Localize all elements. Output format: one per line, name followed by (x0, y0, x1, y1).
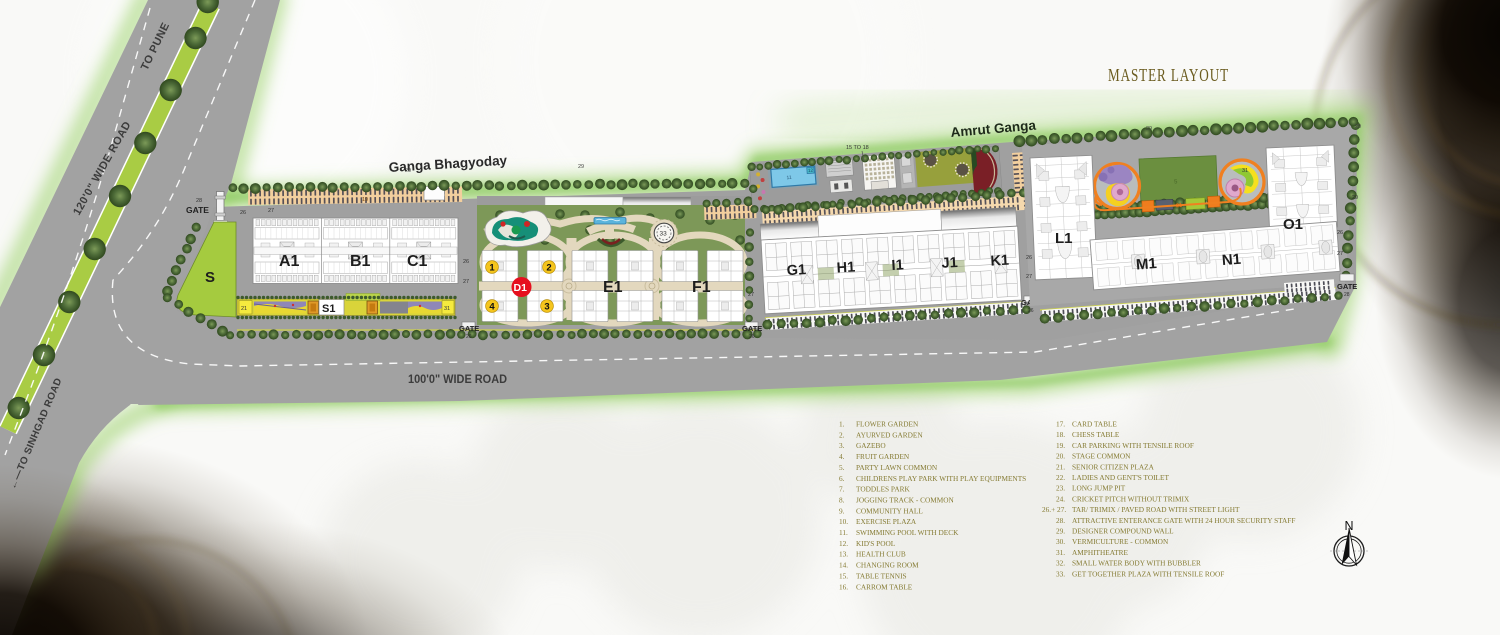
svg-text:33.: 33. (1056, 569, 1065, 578)
svg-text:29: 29 (578, 164, 584, 170)
svg-text:6.: 6. (839, 474, 845, 483)
svg-text:29: 29 (1352, 195, 1358, 201)
svg-text:3: 3 (544, 301, 549, 312)
svg-text:12: 12 (808, 168, 814, 173)
svg-text:J1: J1 (941, 255, 958, 272)
svg-text:TABLE TENNIS: TABLE TENNIS (856, 571, 907, 580)
svg-text:22.: 22. (1056, 473, 1065, 482)
svg-text:B1: B1 (350, 253, 371, 270)
svg-text:CHILDRENS PLAY PARK WITH PLAY: CHILDRENS PLAY PARK WITH PLAY EQUIPMENTS (856, 474, 1026, 483)
svg-text:TAR/ TRIMIX / PAVED ROAD WITH: TAR/ TRIMIX / PAVED ROAD WITH STREET LIG… (1072, 505, 1240, 514)
svg-text:15.: 15. (839, 571, 848, 580)
svg-text:29: 29 (1355, 124, 1361, 130)
svg-text:CARD TABLE: CARD TABLE (1072, 420, 1117, 429)
svg-text:FRUIT GARDEN: FRUIT GARDEN (856, 452, 910, 461)
svg-text:28: 28 (1344, 292, 1350, 298)
svg-text:19.: 19. (1056, 441, 1065, 450)
svg-text:SMALL WATER BODY WITH BUBBLER: SMALL WATER BODY WITH BUBBLER (1072, 559, 1201, 568)
svg-text:29.: 29. (1056, 527, 1065, 536)
svg-text:GATE: GATE (742, 324, 762, 333)
svg-text:HEALTH CLUB: HEALTH CLUB (856, 550, 906, 559)
svg-text:1.: 1. (839, 420, 845, 429)
svg-text:27: 27 (463, 279, 469, 285)
svg-text:PARTY LAWN COMMON: PARTY LAWN COMMON (856, 463, 938, 472)
svg-text:CAR PARKING WITH TENSILE ROOF: CAR PARKING WITH TENSILE ROOF (1072, 441, 1194, 450)
svg-text:33: 33 (660, 231, 668, 238)
svg-text:S: S (205, 269, 215, 286)
svg-text:CHESS TABLE: CHESS TABLE (1072, 430, 1120, 439)
svg-text:26: 26 (463, 259, 469, 265)
svg-text:N: N (1345, 519, 1354, 533)
svg-text:I1: I1 (891, 257, 904, 274)
svg-text:19: 19 (362, 197, 368, 203)
svg-text:C1: C1 (407, 253, 428, 270)
svg-text:CARROM TABLE: CARROM TABLE (856, 582, 913, 591)
svg-text:A1: A1 (279, 253, 300, 270)
svg-text:26: 26 (466, 334, 472, 340)
svg-text:26: 26 (1337, 230, 1343, 236)
svg-text:KID'S POOL: KID'S POOL (856, 539, 896, 548)
svg-text:JOGGING TRACK - COMMON: JOGGING TRACK - COMMON (856, 496, 955, 505)
svg-text:S1: S1 (322, 303, 335, 315)
svg-text:8.: 8. (839, 496, 845, 505)
svg-text:32.: 32. (1056, 559, 1065, 568)
svg-text:ATTRACTIVE ENTERANCE GATE WITH: ATTRACTIVE ENTERANCE GATE WITH 24 HOUR S… (1072, 516, 1295, 525)
svg-text:LONG JUMP PIT: LONG JUMP PIT (1072, 484, 1126, 493)
svg-text:17.: 17. (1056, 420, 1065, 429)
svg-text:27: 27 (1337, 251, 1343, 257)
svg-text:EXERCISE PLAZA: EXERCISE PLAZA (856, 517, 917, 526)
svg-text:13.: 13. (839, 550, 848, 559)
svg-text:DESIGNER COMPOUND WALL: DESIGNER COMPOUND WALL (1072, 527, 1174, 536)
svg-text:28.: 28. (1056, 516, 1065, 525)
svg-text:L1: L1 (1055, 230, 1073, 247)
svg-text:CHANGING ROOM: CHANGING ROOM (856, 561, 919, 570)
svg-text:O1: O1 (1283, 216, 1303, 233)
svg-text:16.: 16. (839, 582, 848, 591)
svg-text:30.: 30. (1056, 537, 1065, 546)
svg-text:7.: 7. (839, 485, 845, 494)
svg-text:27: 27 (1026, 274, 1032, 280)
svg-text:29: 29 (405, 168, 411, 174)
svg-text:20.: 20. (1056, 452, 1065, 461)
svg-text:21.: 21. (1056, 462, 1065, 471)
svg-text:AYURVED GARDEN: AYURVED GARDEN (856, 430, 923, 439)
svg-text:CRICKET PITCH WITHOUT TRIMIX: CRICKET PITCH WITHOUT TRIMIX (1072, 494, 1190, 503)
svg-text:4: 4 (489, 301, 495, 312)
svg-text:23.: 23. (1056, 484, 1065, 493)
svg-text:5.: 5. (839, 463, 845, 472)
svg-text:FLOWER GARDEN: FLOWER GARDEN (856, 420, 919, 429)
svg-text:2.: 2. (839, 430, 845, 439)
svg-text:27: 27 (268, 208, 274, 214)
svg-text:TODDLES PARK: TODDLES PARK (856, 485, 910, 494)
svg-text:31: 31 (1242, 168, 1248, 174)
svg-text:11.: 11. (839, 528, 848, 537)
svg-text:K1: K1 (990, 253, 1009, 270)
svg-text:SWIMMING POOL WITH DECK: SWIMMING POOL WITH DECK (856, 528, 959, 537)
svg-text:VERMICULTURE - COMMON: VERMICULTURE - COMMON (1072, 537, 1169, 546)
svg-text:18.: 18. (1056, 430, 1065, 439)
svg-text:11: 11 (786, 175, 792, 181)
svg-text:10.: 10. (839, 517, 848, 526)
svg-text:AMPHITHEATRE: AMPHITHEATRE (1072, 548, 1128, 557)
svg-text:H1: H1 (836, 259, 855, 276)
svg-text:COMMUNITY HALL: COMMUNITY HALL (856, 506, 923, 515)
svg-text:21: 21 (241, 306, 247, 312)
svg-text:G1: G1 (786, 262, 806, 279)
svg-text:E1: E1 (603, 279, 623, 296)
svg-text:15 TO 18: 15 TO 18 (846, 145, 869, 151)
svg-text:4.: 4. (839, 452, 845, 461)
svg-text:GATE: GATE (186, 205, 209, 215)
svg-text:26: 26 (1028, 308, 1034, 314)
svg-text:12.: 12. (839, 539, 848, 548)
svg-text:N1: N1 (1221, 251, 1241, 269)
svg-text:14.: 14. (839, 561, 848, 570)
svg-text:SENIOR CITIZEN PLAZA: SENIOR CITIZEN PLAZA (1072, 462, 1155, 471)
svg-text:GATE: GATE (459, 324, 479, 333)
svg-text:STAGE COMMON: STAGE COMMON (1072, 452, 1131, 461)
svg-text:29: 29 (1146, 126, 1152, 132)
svg-text:LADIES AND GENT'S TOILET: LADIES AND GENT'S TOILET (1072, 473, 1169, 482)
svg-text:GET TOGETHER PLAZA WITH TENSIL: GET TOGETHER PLAZA WITH TENSILE ROOF (1072, 569, 1224, 578)
svg-text:M1: M1 (1135, 255, 1157, 274)
svg-text:24.: 24. (1056, 494, 1065, 503)
svg-text:26.+ 27.: 26.+ 27. (1042, 505, 1066, 514)
svg-text:MASTER LAYOUT: MASTER LAYOUT (1108, 65, 1229, 85)
svg-text:100'0" WIDE ROAD: 100'0" WIDE ROAD (408, 372, 507, 386)
svg-text:26: 26 (1026, 255, 1032, 261)
svg-text:1: 1 (489, 262, 495, 273)
svg-text:26: 26 (749, 334, 755, 340)
svg-text:D1: D1 (514, 282, 528, 294)
svg-text:28: 28 (196, 198, 202, 204)
svg-text:31: 31 (444, 306, 450, 312)
svg-text:F1: F1 (692, 279, 711, 296)
svg-text:2: 2 (546, 262, 551, 273)
svg-text:3.: 3. (839, 441, 845, 450)
svg-text:GATE: GATE (1337, 282, 1357, 291)
svg-text:26: 26 (240, 210, 246, 216)
svg-text:31.: 31. (1056, 548, 1065, 557)
svg-text:GAZEBO: GAZEBO (856, 441, 886, 450)
svg-text:9.: 9. (839, 506, 845, 515)
